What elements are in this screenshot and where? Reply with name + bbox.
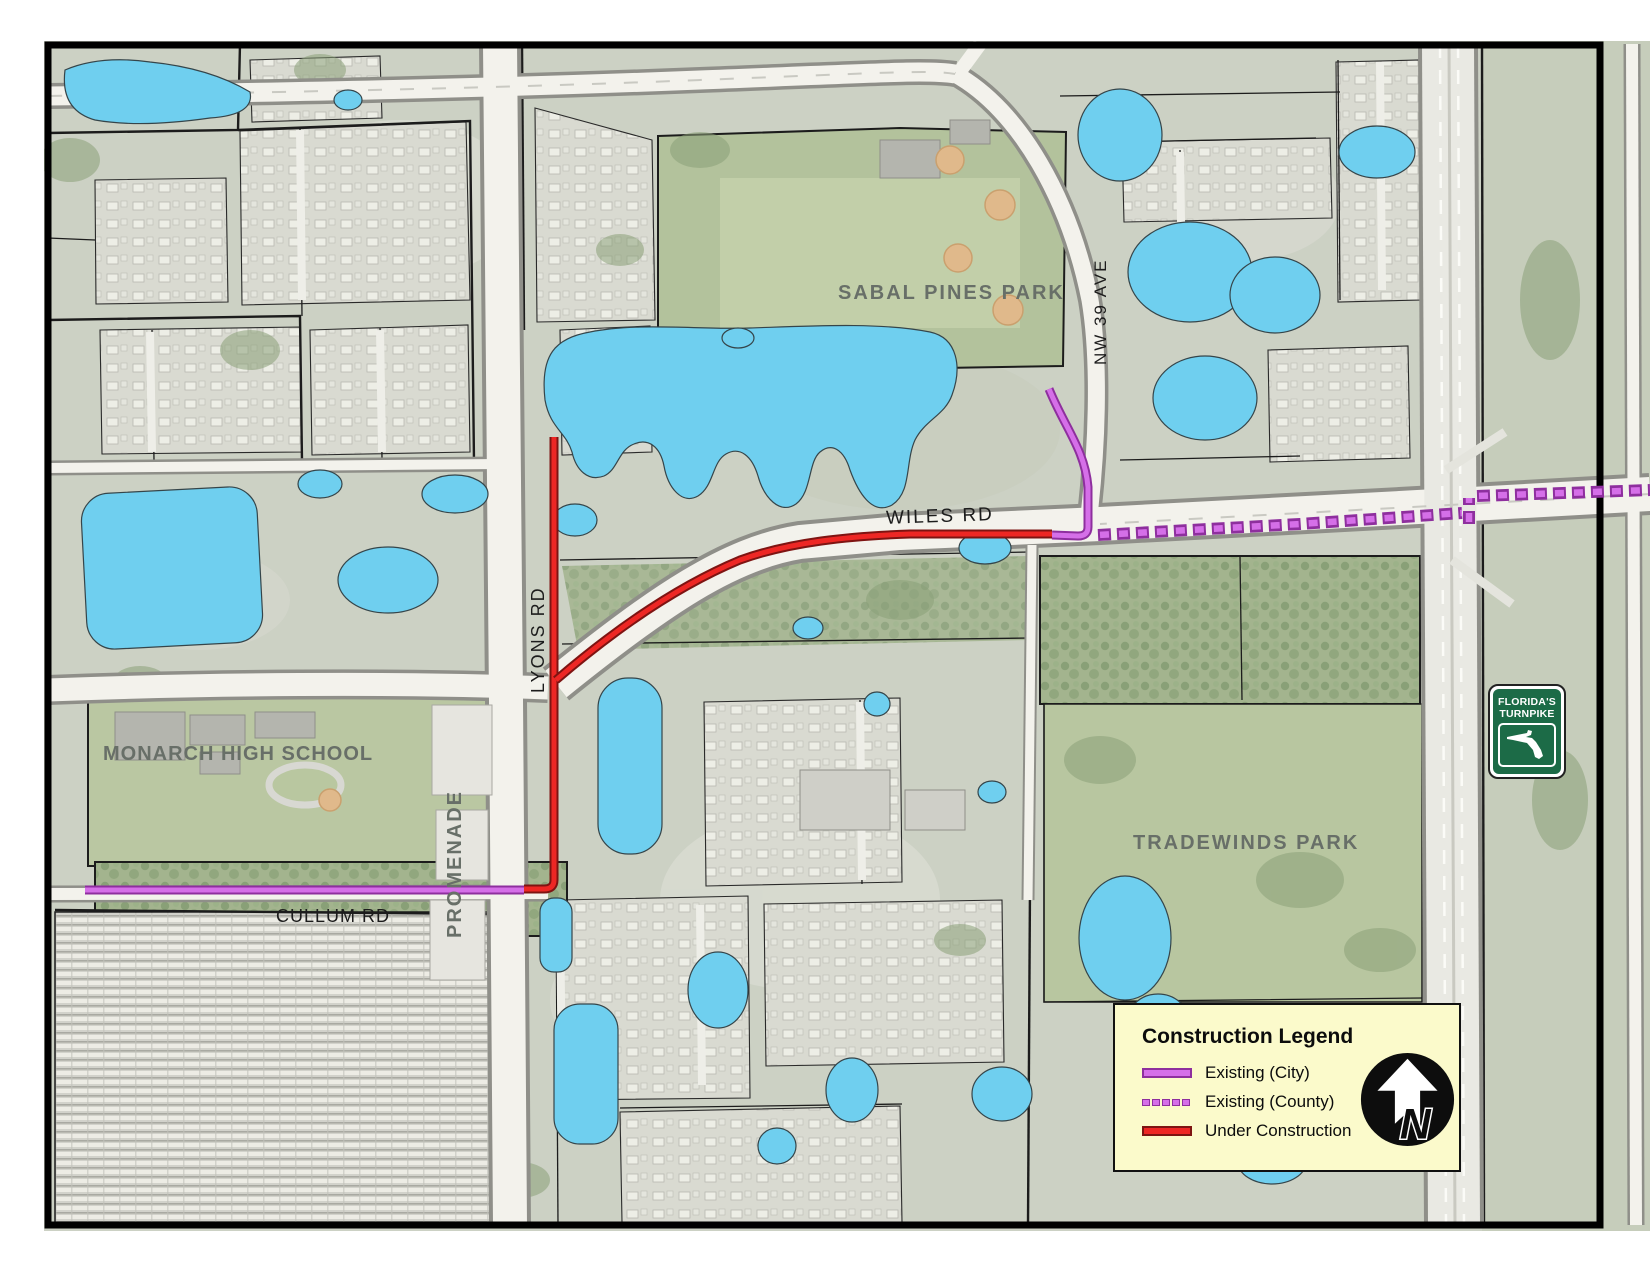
legend-item-under-construction: Under Construction xyxy=(1142,1121,1357,1141)
turnpike-shield-text: FLORIDA'S TURNPIKE xyxy=(1498,696,1556,720)
legend-item-existing-county: Existing (County) xyxy=(1142,1092,1357,1112)
turnpike-shield-green: FLORIDA'S TURNPIKE xyxy=(1493,689,1561,774)
legend-title: Construction Legend xyxy=(1142,1025,1459,1049)
under-construction-line-swatch xyxy=(1142,1126,1192,1136)
turnpike-shield-line2: TURNPIKE xyxy=(1498,708,1556,720)
turnpike-shield-line1: FLORIDA'S xyxy=(1498,696,1556,708)
existing-city-line-swatch xyxy=(1142,1068,1192,1078)
floridas-turnpike-shield: FLORIDA'S TURNPIKE xyxy=(1488,684,1566,779)
legend-item-existing-city: Existing (City) xyxy=(1142,1063,1357,1083)
construction-map-page: SABAL PINES PARK NW 39 AVE WILES RD LYON… xyxy=(0,0,1650,1275)
existing-county-dash-swatch xyxy=(1142,1099,1192,1106)
north-arrow-icon: N xyxy=(1359,1051,1456,1148)
florida-silhouette-icon xyxy=(1498,723,1556,767)
north-arrow-n: N xyxy=(1400,1100,1432,1148)
